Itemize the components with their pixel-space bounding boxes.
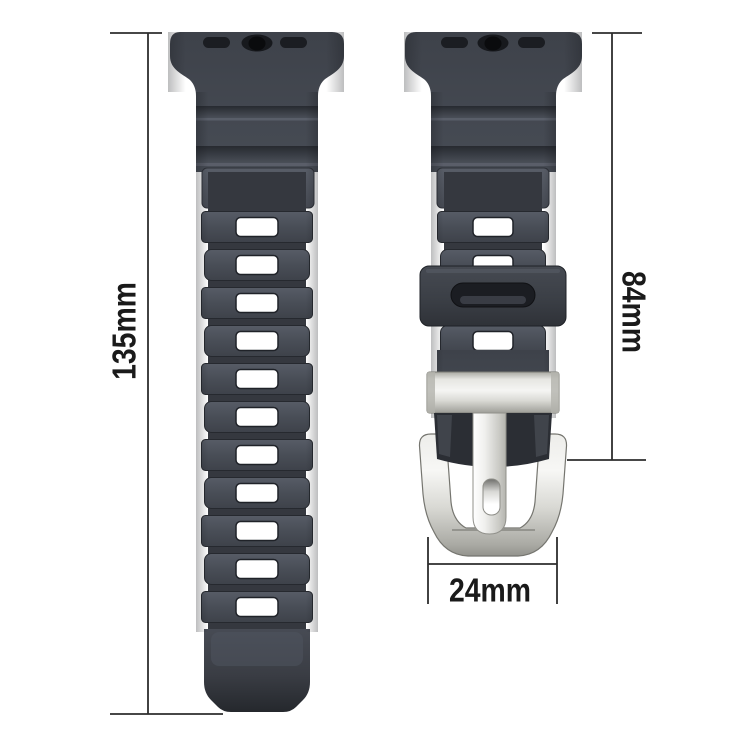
dimension-lines <box>110 33 646 714</box>
strap-end-bevel-right <box>534 415 549 457</box>
rubber-keeper-highlight <box>426 269 560 273</box>
strap-edge-shading <box>431 92 556 418</box>
metal-keeper <box>427 372 559 413</box>
left-strap <box>168 32 344 712</box>
keeper-slot-inner-highlight <box>460 296 526 304</box>
lug-edge-shading <box>168 32 344 92</box>
diagram-canvas: 135mm 84mm 24mm <box>0 0 750 750</box>
right-strap <box>404 32 582 556</box>
left-strap-length-label: 135mm <box>108 282 141 380</box>
tip-highlight <box>211 632 303 666</box>
strap-edge-shading <box>196 92 318 632</box>
metal-keeper-side-left <box>427 372 435 413</box>
right-strap-length-label: 84mm <box>618 271 651 353</box>
buckle-tongue <box>473 413 506 534</box>
tongue-slot <box>483 479 500 515</box>
lug-edge-shading <box>404 32 582 92</box>
strap-end-bevel-left <box>437 415 452 457</box>
buckle-width-label: 24mm <box>449 574 531 607</box>
metal-keeper-side-right <box>551 372 559 413</box>
